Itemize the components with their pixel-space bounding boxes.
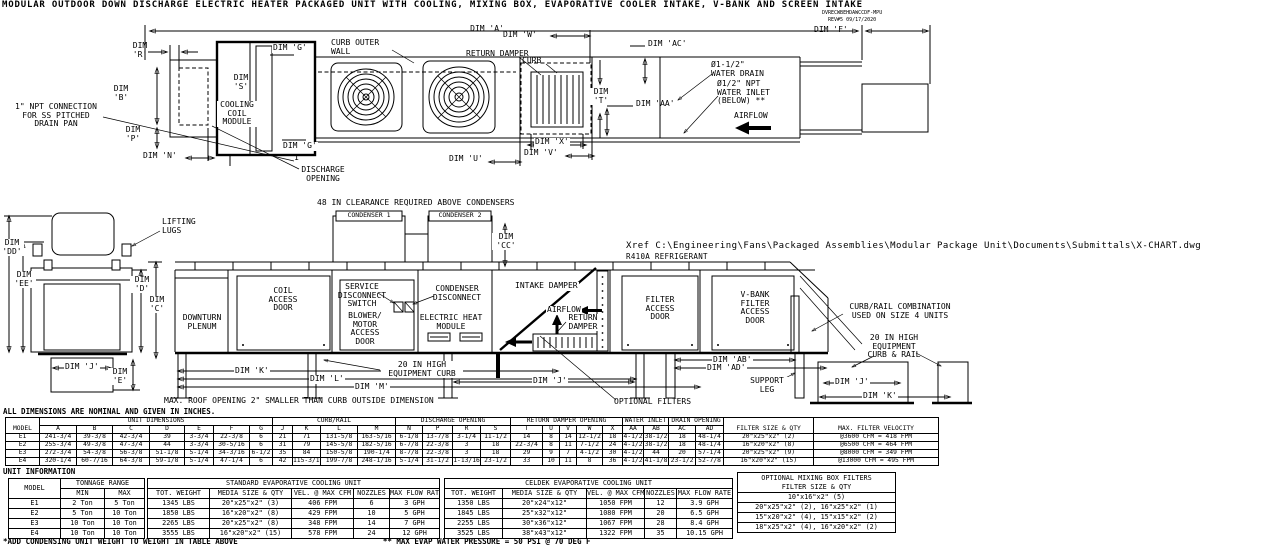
table-row: 15"x20"x2" (4), 15"x15"x2" (2): [738, 513, 896, 523]
table-cell: 24: [603, 441, 623, 449]
table-cell: 3: [453, 441, 481, 449]
col-S: S: [481, 425, 511, 433]
equipment-curb-rail-label: 20 IN HIGH EQUIPMENT CURB & RAIL: [860, 334, 928, 360]
table-cell: 10: [354, 509, 390, 519]
table-cell: 84: [293, 449, 321, 457]
vbank-filter-door-label: V-BANK FILTER ACCESS DOOR: [733, 291, 777, 326]
table-cell: 2255 LBS: [445, 519, 503, 529]
dim-g-top-label: DIM 'G': [272, 44, 308, 53]
table-cell: 20"x24"x12": [503, 499, 587, 509]
drawing-code: DVRECWBEHDAWCCDF-MPU: [822, 10, 882, 16]
table-cell: E3: [6, 449, 40, 457]
table-cell: 39: [150, 433, 185, 441]
col-tot-weight: TOT. WEIGHT: [148, 489, 210, 499]
dim-k-detail-label: DIM 'K': [862, 392, 898, 401]
table-cell: 23-1/2: [481, 457, 511, 465]
cooling-coil-module-label: COOLING COIL MODULE: [217, 101, 257, 127]
table-row: E310 Ton10 Ton: [9, 519, 145, 529]
table-cell: 8.4 GPH: [677, 519, 733, 529]
col-E: E: [185, 425, 214, 433]
table-cell: 71: [293, 433, 321, 441]
table-cell: 25"x32"x12": [503, 509, 587, 519]
col-nozzles: NOZZLES: [645, 489, 677, 499]
dim-x-label: DIM 'X': [534, 138, 570, 147]
standard-evap-header: STANDARD EVAPORATIVE COOLING UNIT: [148, 479, 440, 489]
table-cell: 1-13/16: [453, 457, 481, 465]
table-cell: 30: [603, 449, 623, 457]
dim-k-label: DIM 'K': [234, 367, 270, 376]
group-discharge-opening: DISCHARGE OPENING: [396, 418, 511, 426]
group-drain-opening: DRAIN OPENING: [669, 418, 724, 426]
table-cell: 12-1/2: [577, 433, 603, 441]
celdek-evap-table: CELDEK EVAPORATIVE COOLING UNIT TOT. WEI…: [444, 478, 733, 539]
col-velocity: VEL. @ MAX CFM: [587, 489, 645, 499]
unit-dimensions-body: E1241-3/439-3/842-3/4393-3/422-3/8621711…: [6, 433, 939, 465]
standard-evap-body: 1345 LBS20"x25"x2" (3)406 FPM63 GPH1850 …: [148, 499, 440, 539]
col-F: F: [214, 425, 250, 433]
table-row: 1350 LBS20"x24"x12"1050 FPM123.9 GPH: [445, 499, 733, 509]
roof-seam-ticks: [195, 262, 765, 270]
table-cell: 3-3/4: [185, 441, 214, 449]
table-cell: 9: [543, 449, 560, 457]
table-cell: 3.9 GPH: [677, 499, 733, 509]
dim-j-end-label: DIM 'J': [64, 363, 100, 372]
col-G: G: [250, 425, 273, 433]
col-velocity: VEL. @ MAX CFM: [292, 489, 354, 499]
table-cell: 131-5/8: [321, 433, 358, 441]
table-cell: 199-7/8: [321, 457, 358, 465]
table-cell: 6.5 GPH: [677, 509, 733, 519]
col-media-size: MEDIA SIZE & QTY: [503, 489, 587, 499]
dim-u-label: DIM 'U': [449, 155, 483, 164]
table-cell: @8000 CFM = 349 FPM: [814, 449, 939, 457]
table-cell: 20: [645, 509, 677, 519]
downturn-plenum-label: DOWNTURN PLENUM: [177, 314, 227, 331]
tonnage-range-table: MODELTONNAGE RANGE MINMAX E12 Ton5 TonE2…: [8, 478, 145, 539]
standard-evap-table: STANDARD EVAPORATIVE COOLING UNIT TOT. W…: [147, 478, 440, 539]
return-damper-side-label: RETURN DAMPER: [567, 314, 599, 331]
col-tot-weight: TOT. WEIGHT: [445, 489, 503, 499]
dim-b-label: DIM 'B': [108, 85, 134, 102]
celdek-evap-header: CELDEK EVAPORATIVE COOLING UNIT: [445, 479, 733, 489]
col-AB: AB: [644, 425, 669, 433]
table-cell: 5 Ton: [61, 509, 105, 519]
table-cell: 3525 LBS: [445, 529, 503, 539]
table-row: E3272-3/454-3/856-3/851-1/85-1/434-3/166…: [6, 449, 939, 457]
table-cell: 1050 FPM: [587, 499, 645, 509]
condenser-2-label: CONDENSER 2: [429, 212, 491, 219]
table-cell: 8: [543, 441, 560, 449]
table-cell: 18: [669, 433, 696, 441]
table-cell: 4-1/2: [577, 449, 603, 457]
table-cell: 10 Ton: [105, 509, 145, 519]
dim-n-label: DIM 'N': [143, 152, 177, 161]
group-return-damper-opening: RETURN DAMPER OPENING: [511, 418, 623, 426]
table-cell: 64-3/8: [113, 457, 150, 465]
table-cell: 49-3/8: [77, 441, 113, 449]
dim-ad-label: DIM 'AD': [706, 364, 747, 373]
table-cell: 22-3/8: [214, 433, 250, 441]
col-M: M: [358, 425, 396, 433]
unit-information-title: UNIT INFORMATION: [3, 467, 75, 476]
table-cell: 578 FPM: [292, 529, 354, 539]
table-row: 20"x25"x2" (2), 16"x25"x2" (1): [738, 503, 896, 513]
table-cell: 20: [669, 449, 696, 457]
dim-t-label: DIM 'T': [589, 88, 613, 105]
table-cell: 20"x25"x2" (9): [724, 449, 814, 457]
table-cell: 7 GPH: [390, 519, 440, 529]
col-U: U: [543, 425, 560, 433]
table-cell: 6-1/2: [250, 449, 273, 457]
table-cell: 23-1/2: [669, 457, 696, 465]
airflow-label: AIRFLOW: [734, 112, 768, 121]
table-cell: 6-7/8: [396, 441, 423, 449]
table-cell: 47-3/4: [113, 441, 150, 449]
table-cell: 5-1/4: [185, 457, 214, 465]
col-AA: AA: [623, 425, 644, 433]
table-cell: 145-5/8: [321, 441, 358, 449]
table-cell: 18: [669, 441, 696, 449]
dim-cc-label: DIM 'CC': [492, 233, 520, 250]
npt-drain-label: 1" NPT CONNECTION FOR SS PITCHED DRAIN P…: [6, 103, 106, 129]
table-cell: 2265 LBS: [148, 519, 210, 529]
table-cell: 248-1/16: [358, 457, 396, 465]
refrigerant-note: R410A REFRIGERANT: [626, 252, 708, 261]
electric-heat-module-label: ELECTRIC HEAT MODULE: [414, 314, 488, 331]
table-cell: E2: [6, 441, 40, 449]
col-W: W: [577, 425, 603, 433]
table-cell: E2: [9, 509, 61, 519]
table-row: 1845 LBS25"x32"x12"1080 FPM206.5 GPH: [445, 509, 733, 519]
water-inlet-label: Ø1/2" NPT WATER INLET (BELOW) **: [717, 80, 770, 106]
table-cell: 18"x25"x2" (4), 16"x20"x2" (2): [738, 523, 896, 533]
dim-m-label: DIM 'M': [354, 383, 390, 392]
table-cell: 11: [560, 457, 577, 465]
tonnage-range-header: TONNAGE RANGE: [61, 479, 145, 489]
col-R: R: [453, 425, 481, 433]
col-D: D: [150, 425, 185, 433]
col-V: V: [560, 425, 577, 433]
table-cell: 12 GPH: [390, 529, 440, 539]
table-cell: 24: [354, 529, 390, 539]
table-row: E12 Ton5 Ton: [9, 499, 145, 509]
lifting-lugs-label: LIFTING LUGS: [162, 218, 196, 235]
damper-blade-dots: [602, 276, 604, 348]
table-cell: E1: [6, 433, 40, 441]
service-disconnect-label: SERVICE DISCONNECT SWITCH: [331, 283, 393, 309]
table-row: 3555 LBS16"x20"x2" (15)578 FPM2412 GPH: [148, 529, 440, 539]
table-cell: 1345 LBS: [148, 499, 210, 509]
tonnage-body: E12 Ton5 TonE25 Ton10 TonE310 Ton10 TonE…: [9, 499, 145, 539]
table-cell: 14: [560, 433, 577, 441]
col-P: P: [423, 425, 453, 433]
col-media-size: MEDIA SIZE & QTY: [210, 489, 292, 499]
table-cell: 8-7/8: [396, 449, 423, 457]
max-filter-velocity-header: MAX. FILTER VELOCITY: [814, 418, 939, 434]
table-cell: 241-3/4: [40, 433, 77, 441]
group-header-row: MODEL UNIT DIMENSIONS CURB/RAIL DISCHARG…: [6, 418, 939, 426]
table-cell: 22-3/8: [423, 449, 453, 457]
dim-r-label: DIM 'R': [127, 42, 153, 59]
unit-dimensions-table: MODEL UNIT DIMENSIONS CURB/RAIL DISCHARG…: [5, 417, 939, 466]
table-cell: 20"x25"x2" (3): [210, 499, 292, 509]
discharge-opening-label: DISCHARGE OPENING: [299, 166, 347, 183]
table-cell: 5 GPH: [390, 509, 440, 519]
dim-j-detail-label: DIM 'J': [834, 378, 870, 387]
table-cell: 44: [644, 449, 669, 457]
table-cell: 28: [645, 519, 677, 529]
table-cell: 255-3/4: [40, 441, 77, 449]
table-cell: 1850 LBS: [148, 509, 210, 519]
curb-label: CURB: [522, 57, 541, 66]
col-N: N: [396, 425, 423, 433]
table-cell: 11: [560, 441, 577, 449]
table-cell: @3600 CFM = 418 FPM: [814, 433, 939, 441]
table-cell: 13-7/8: [423, 433, 453, 441]
table-cell: 16"x20"x2" (8): [724, 441, 814, 449]
table-cell: 42-3/4: [113, 433, 150, 441]
table-cell: 429 FPM: [292, 509, 354, 519]
mixing-box-filters-table: OPTIONAL MIXING BOX FILTERSFILTER SIZE &…: [737, 472, 896, 533]
table-cell: 35: [645, 529, 677, 539]
table-row: 10"x16"x2" (5): [738, 493, 896, 503]
group-curb-rail: CURB/RAIL: [273, 418, 396, 426]
mixing-box-header-line2: FILTER SIZE & QTY: [738, 483, 895, 491]
table-row: E4320-1/460-7/1664-3/859-1/85-1/447-1/46…: [6, 457, 939, 465]
table-cell: 272-3/4: [40, 449, 77, 457]
table-cell: 4-1/2: [623, 449, 644, 457]
table-cell: 2 Ton: [61, 499, 105, 509]
optional-filters-label: OPTIONAL FILTERS: [614, 398, 691, 407]
col-X: X: [603, 425, 623, 433]
dim-dd-label: DIM 'DD': [0, 239, 24, 256]
dimensions-note: ALL DIMENSIONS ARE NOMINAL AND GIVEN IN …: [3, 407, 215, 416]
mixing-box-header-line1: OPTIONAL MIXING BOX FILTERS: [738, 474, 895, 482]
table-cell: 47-1/4: [214, 457, 250, 465]
table-cell: 182-5/16: [358, 441, 396, 449]
table-cell: 8: [543, 433, 560, 441]
table-cell: 56-3/8: [113, 449, 150, 457]
table-cell: 3-3/4: [185, 433, 214, 441]
table-cell: 150-5/8: [321, 449, 358, 457]
celdek-evap-body: 1350 LBS20"x24"x12"1050 FPM123.9 GPH1845…: [445, 499, 733, 539]
table-row: E1241-3/439-3/842-3/4393-3/422-3/8621711…: [6, 433, 939, 441]
table-cell: 3555 LBS: [148, 529, 210, 539]
condenser-disconnect-label: CONDENSER DISCONNECT: [428, 285, 486, 302]
table-cell: 41-1/8: [644, 457, 669, 465]
filter-access-door-label: FILTER ACCESS DOOR: [634, 296, 686, 322]
table-row: E25 Ton10 Ton: [9, 509, 145, 519]
col-B: B: [77, 425, 113, 433]
xref-path: Xref C:\Engineering\Fans\Packaged Assemb…: [626, 241, 1201, 251]
table-row: 2265 LBS20"x25"x2" (8)348 FPM147 GPH: [148, 519, 440, 529]
table-cell: 57-1/4: [696, 449, 724, 457]
drawing-title: MODULAR OUTDOOR DOWN DISCHARGE ELECTRIC …: [2, 0, 863, 10]
table-cell: 1067 FPM: [587, 519, 645, 529]
dim-v-label: DIM 'V': [524, 149, 558, 158]
table-cell: 6: [250, 433, 273, 441]
table-cell: 4-1/2: [623, 433, 644, 441]
table-row: 2255 LBS30"x36"x12"1067 FPM288.4 GPH: [445, 519, 733, 529]
table-cell: 14: [354, 519, 390, 529]
airflow-arrow-icon: [735, 122, 771, 135]
table-cell: 18: [481, 441, 511, 449]
table-cell: 1845 LBS: [445, 509, 503, 519]
table-cell: 18: [481, 449, 511, 457]
table-cell: 406 FPM: [292, 499, 354, 509]
table-row: E410 Ton10 Ton: [9, 529, 145, 539]
table-cell: @6500 CFM = 464 FPM: [814, 441, 939, 449]
table-cell: 31-1/2: [423, 457, 453, 465]
col-AC: AC: [669, 425, 696, 433]
table-cell: 163-5/16: [358, 433, 396, 441]
table-cell: 5-1/4: [185, 449, 214, 457]
return-damper-label: RETURN DAMPER: [466, 50, 529, 59]
dim-j-side-label: DIM 'J': [532, 377, 568, 386]
table-cell: 20"x25"x2" (2): [724, 433, 814, 441]
table-cell: 54-3/8: [77, 449, 113, 457]
table-cell: 48-1/4: [696, 433, 724, 441]
revision-date: REV#5 09/17/2020: [828, 17, 876, 23]
table-cell: E4: [9, 529, 61, 539]
clearance-note: 48 IN CLEARANCE REQUIRED ABOVE CONDENSER…: [317, 199, 514, 208]
col-K: K: [293, 425, 321, 433]
table-cell: 1322 FPM: [587, 529, 645, 539]
dim-ac-label: DIM 'AC': [648, 40, 687, 49]
table-cell: 10 Ton: [61, 529, 105, 539]
curb-outer-wall-label: CURB OUTER WALL: [331, 39, 379, 56]
table-cell: 79: [293, 441, 321, 449]
max-header: MAX: [105, 489, 145, 499]
table-cell: 52-7/8: [696, 457, 724, 465]
table-cell: 1350 LBS: [445, 499, 503, 509]
col-nozzles: NOZZLES: [354, 489, 390, 499]
table-cell: 36: [603, 457, 623, 465]
dim-p-label: DIM 'P': [120, 126, 146, 143]
table-cell: E1: [9, 499, 61, 509]
table-cell: 51-1/8: [150, 449, 185, 457]
table-cell: 42: [273, 457, 293, 465]
table-row: 18"x25"x2" (4), 16"x20"x2" (2): [738, 523, 896, 533]
table-cell: @13000 CFM = 495 FPM: [814, 457, 939, 465]
dim-aa-label: DIM 'AA': [636, 100, 675, 109]
model-header: MODEL: [9, 479, 61, 499]
table-cell: 8: [577, 457, 603, 465]
table-cell: 20"x25"x2" (2), 16"x25"x2" (1): [738, 503, 896, 513]
airflow-arrow-icon: [505, 337, 532, 347]
table-cell: 14: [511, 433, 543, 441]
dim-f-label: DIM 'F': [814, 26, 848, 35]
table-cell: 10: [543, 457, 560, 465]
table-cell: 30-5/16: [214, 441, 250, 449]
mixing-box-body: 10"x16"x2" (5)20"x25"x2" (2), 16"x25"x2"…: [738, 493, 896, 533]
table-cell: 31: [273, 441, 293, 449]
table-cell: 39-3/8: [77, 433, 113, 441]
max-roof-opening-note: MAX. ROOF OPENING 2" SMALLER THAN CURB O…: [164, 397, 434, 406]
table-cell: 16"x20"x2" (15): [210, 529, 292, 539]
top-view-linework: [103, 25, 930, 169]
table-cell: 6: [250, 457, 273, 465]
table-cell: 3 GPH: [390, 499, 440, 509]
filter-size-header: FILTER SIZE & QTY: [724, 418, 814, 434]
table-cell: 10"x16"x2" (5): [738, 493, 896, 503]
table-cell: 12: [645, 499, 677, 509]
condenser-1-label: CONDENSER 1: [336, 212, 402, 219]
table-cell: 5-1/4: [396, 457, 423, 465]
up-arrow-icon: [552, 314, 562, 334]
col-A: A: [40, 425, 77, 433]
dim-w-label: DIM 'W': [503, 31, 537, 40]
table-cell: 16"x20"x2" (8): [210, 509, 292, 519]
dim-c-label: DIM 'C': [145, 296, 169, 313]
return-damper-grille: [521, 63, 591, 134]
dim-g-bottom-label: DIM 'G': [282, 142, 318, 151]
table-cell: 3: [453, 449, 481, 457]
table-cell: 5 Ton: [105, 499, 145, 509]
table-cell: 3-1/4: [453, 433, 481, 441]
table-cell: 21: [273, 433, 293, 441]
water-drain-label: Ø1-1/2" WATER DRAIN: [711, 61, 764, 78]
min-header: MIN: [61, 489, 105, 499]
table-cell: 22-3/4: [511, 441, 543, 449]
group-water-inlet: WATER INLET: [623, 418, 669, 426]
table-cell: 348 FPM: [292, 519, 354, 529]
blower-motor-door-label: BLOWER/ MOTOR ACCESS DOOR: [337, 312, 393, 347]
table-cell: 59-1/8: [150, 457, 185, 465]
condenser-fan-icon: [331, 63, 402, 131]
col-flow-rate: MAX FLOW RATE: [390, 489, 440, 499]
section-mark-label: 1: [294, 154, 299, 163]
table-cell: 320-1/4: [40, 457, 77, 465]
table-cell: 10 Ton: [61, 519, 105, 529]
col-flow-rate: MAX FLOW RATE: [677, 489, 733, 499]
revision-block: DVRECWBEHDAWCCDF-MPUREV#5 09/17/2020: [822, 10, 882, 24]
dim-e-label: DIM 'E': [108, 368, 132, 385]
table-cell: 20"x25"x2" (8): [210, 519, 292, 529]
table-cell: 6-1/8: [396, 433, 423, 441]
table-cell: E4: [6, 457, 40, 465]
intake-damper-label: INTAKE DAMPER: [514, 282, 579, 291]
model-header: MODEL: [6, 418, 40, 434]
table-cell: 38"x43"x12": [503, 529, 587, 539]
col-J: J: [273, 425, 293, 433]
table-row: 3525 LBS38"x43"x12"1322 FPM3510.15 GPH: [445, 529, 733, 539]
dim-d-label: DIM 'D': [130, 276, 154, 293]
dim-s-label: DIM 'S': [229, 74, 253, 91]
table-cell: 34-3/16: [214, 449, 250, 457]
table-row: E2255-3/449-3/847-3/4443-3/430-5/1663179…: [6, 441, 939, 449]
dim-ee-label: DIM 'EE': [12, 271, 36, 288]
table-cell: 4-1/2: [623, 441, 644, 449]
table-cell: 38-1/2: [644, 441, 669, 449]
table-cell: 33: [511, 457, 543, 465]
table-cell: E3: [9, 519, 61, 529]
table-cell: 1080 FPM: [587, 509, 645, 519]
table-cell: 30"x36"x12": [503, 519, 587, 529]
table-cell: 11-1/2: [481, 433, 511, 441]
table-cell: 7: [560, 449, 577, 457]
table-cell: 115-3/16: [293, 457, 321, 465]
table-cell: 18: [603, 433, 623, 441]
damper-ticks: [538, 337, 592, 348]
table-cell: 60-7/16: [77, 457, 113, 465]
table-cell: 10 Ton: [105, 529, 145, 539]
equipment-curb-label: 20 IN HIGH EQUIPMENT CURB: [381, 361, 463, 378]
table-row: 1850 LBS16"x20"x2" (8)429 FPM105 GPH: [148, 509, 440, 519]
table-cell: 10 Ton: [105, 519, 145, 529]
dim-l-label: DIM 'L': [309, 375, 345, 384]
coil-access-door-label: COIL ACCESS DOOR: [256, 287, 310, 313]
